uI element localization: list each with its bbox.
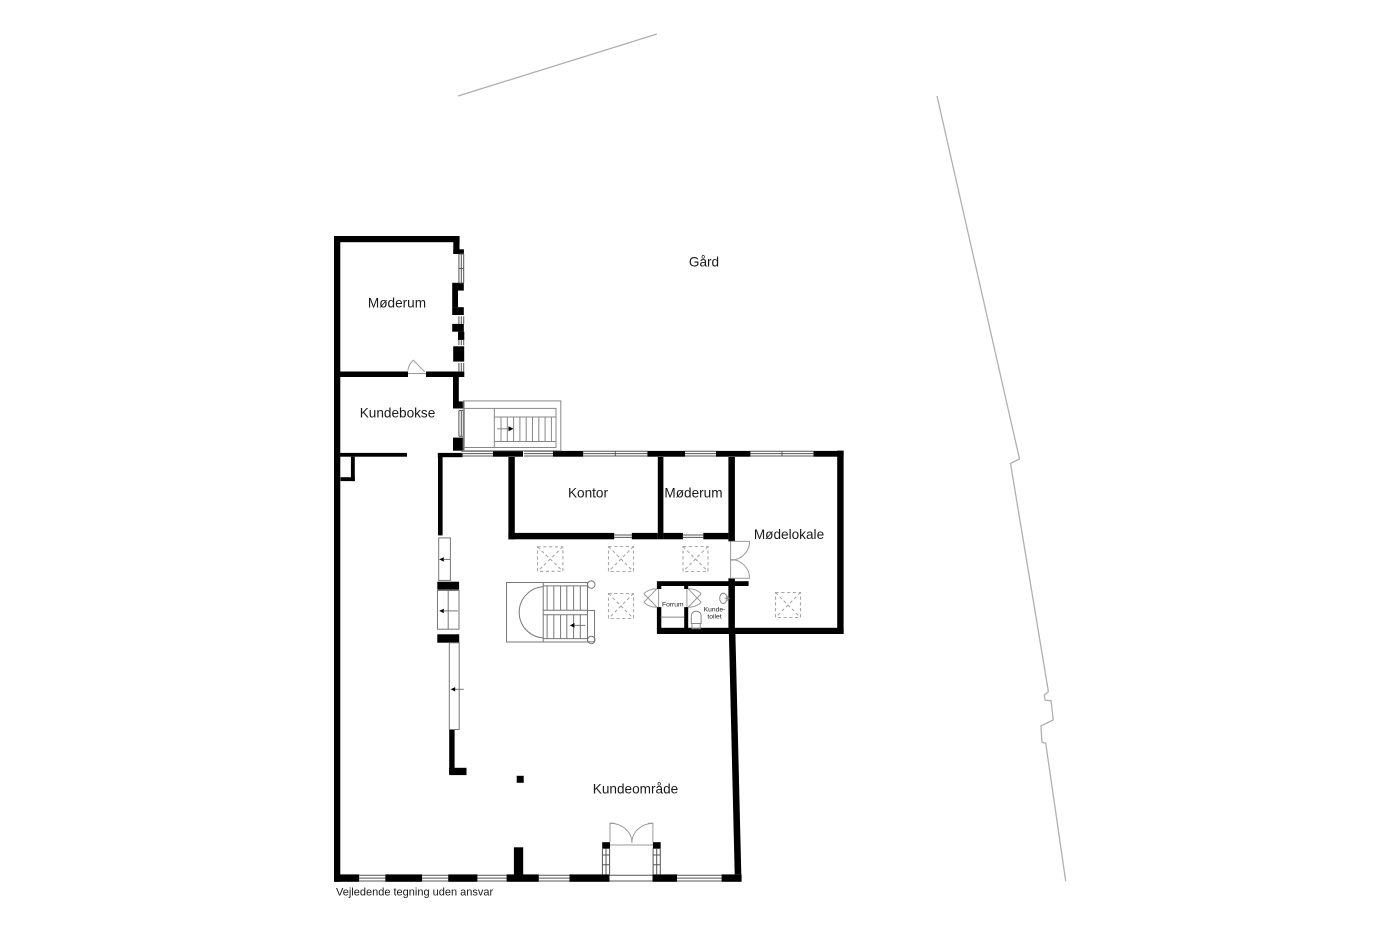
svg-text:Forrum: Forrum — [662, 602, 684, 609]
svg-text:toilet: toilet — [707, 614, 721, 621]
svg-text:Vejledende tegning uden ansvar: Vejledende tegning uden ansvar — [336, 886, 494, 898]
svg-text:Mødelokale: Mødelokale — [754, 527, 824, 542]
svg-text:Kundeområde: Kundeområde — [593, 782, 678, 797]
svg-text:Kontor: Kontor — [568, 486, 609, 501]
svg-text:Kundebokse: Kundebokse — [360, 405, 436, 420]
svg-text:Møderum: Møderum — [368, 295, 426, 310]
svg-text:Kunde-: Kunde- — [704, 607, 726, 614]
svg-text:Gård: Gård — [689, 254, 719, 269]
svg-text:Møderum: Møderum — [664, 486, 722, 501]
